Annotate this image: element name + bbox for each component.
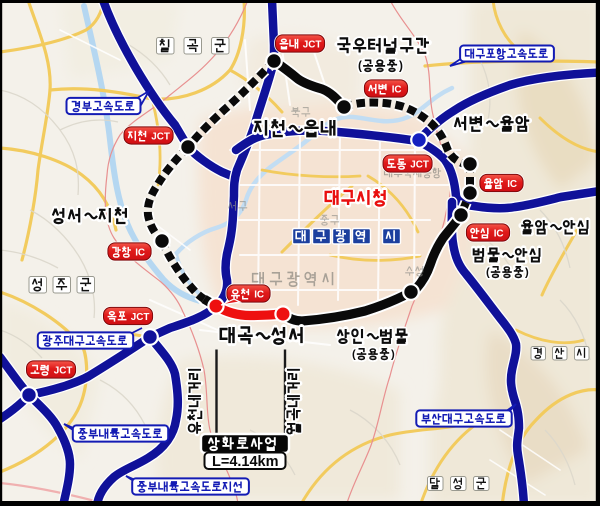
svg-text:IC: IC [135,247,145,258]
svg-text:L=4.14km: L=4.14km [212,454,279,470]
svg-text:JCT: JCT [303,39,322,50]
svg-text:IC: IC [254,289,264,300]
svg-text:JCT: JCT [410,159,429,170]
svg-text:(: ( [486,267,490,279]
svg-text:(: ( [352,349,356,361]
svg-text:JCT: JCT [54,365,73,376]
svg-text:JCT: JCT [151,131,170,142]
svg-text:): ) [391,349,395,361]
svg-text:): ) [399,59,403,73]
svg-text:IC: IC [507,179,517,190]
svg-text:IC: IC [392,84,402,95]
svg-text:JCT: JCT [131,312,150,323]
svg-text:IC: IC [494,228,504,239]
svg-text:(: ( [358,59,362,73]
svg-text:): ) [525,267,529,279]
